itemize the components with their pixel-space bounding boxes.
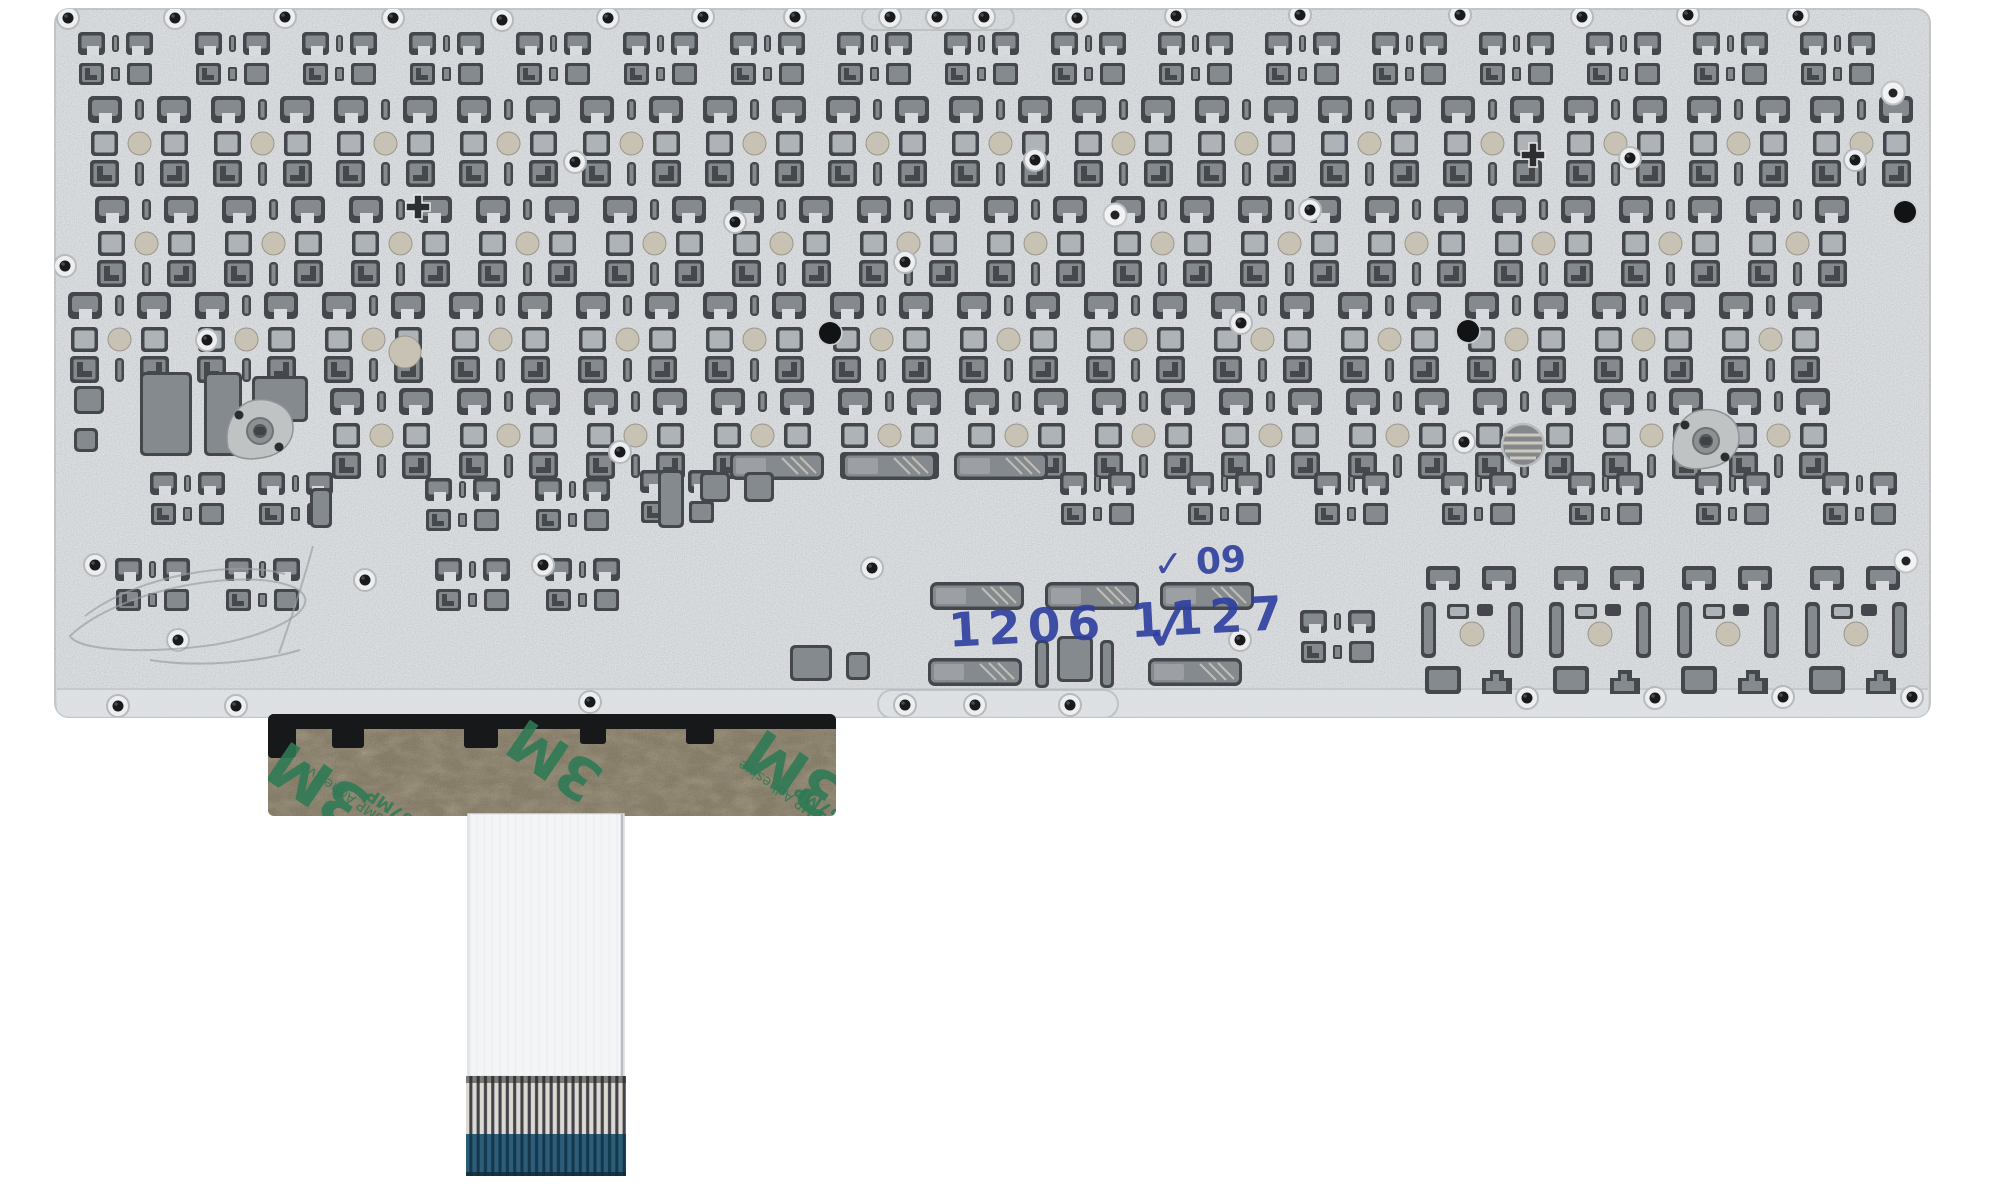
screw [609, 441, 631, 463]
key-cutout-cluster [730, 196, 833, 287]
adhesive-tab [686, 727, 714, 744]
membrane-dome [389, 336, 421, 368]
key-cutout-cluster [1592, 292, 1695, 383]
key-cutout-cluster [88, 96, 191, 187]
round-trace-hole [1502, 424, 1544, 466]
key-cutout-cluster [1365, 196, 1468, 287]
key-cutout-cluster [449, 292, 552, 383]
key-cutout-cluster [1465, 292, 1568, 383]
ring-hole [1882, 82, 1905, 105]
key-cutout-cluster [1687, 96, 1790, 187]
screw [1059, 694, 1081, 716]
screw [1230, 312, 1252, 334]
stabilizer-slot [842, 452, 936, 480]
key-cutout-cluster [1072, 96, 1175, 187]
screw [1571, 6, 1593, 28]
key-cutout-cluster [826, 96, 929, 187]
alignment-hole [1456, 319, 1480, 343]
key-cutout-cluster [957, 292, 1060, 383]
key-cutout-cluster [703, 292, 806, 383]
key-cutout-cluster [1619, 196, 1722, 287]
screw [1901, 686, 1923, 708]
key-cutout-cluster [476, 196, 579, 287]
screw [784, 6, 806, 28]
key-cutout-cluster [1211, 292, 1314, 383]
key-cutout-cluster [457, 388, 560, 479]
key-cutout-cluster [1727, 388, 1830, 479]
stabilizer-slot [928, 658, 1022, 686]
ribbon-cable-stiffener [466, 1134, 626, 1176]
key-cutout-cluster [984, 196, 1087, 287]
keyboard-backplate-photo: ✓ 09 1206 1127 ✓ 3M 3M 3M 200MP Adhesive… [0, 0, 2000, 1187]
key-cutout-cluster [1092, 388, 1195, 479]
key-cutout-cluster [580, 96, 683, 187]
ring-hole [1895, 550, 1918, 573]
screw [532, 554, 554, 576]
key-cutout-cluster [1195, 96, 1298, 187]
key-cutout-cluster [1346, 388, 1449, 479]
screw [879, 6, 901, 28]
key-cutout-cluster [211, 96, 314, 187]
key-cutout-cluster [1338, 292, 1441, 383]
screw [692, 6, 714, 28]
metal-backplate: ✓ 09 1206 1127 ✓ [54, 0, 1930, 718]
key-cutout-cluster [330, 388, 433, 479]
screw [926, 6, 948, 28]
screw [57, 7, 79, 29]
key-cutout-cluster [1084, 292, 1187, 383]
screw [54, 255, 76, 277]
key-cutout-cluster [1564, 96, 1667, 187]
edge-nub [1102, 0, 1116, 9]
key-cutout-cluster [603, 196, 706, 287]
screw [274, 6, 296, 28]
alignment-hole [1893, 200, 1917, 224]
screw [894, 251, 916, 273]
stabilizer-slot [730, 452, 824, 480]
key-cutout-cluster [1746, 196, 1849, 287]
key-cutout-cluster [1318, 96, 1421, 187]
key-cutout-cluster [1719, 292, 1822, 383]
key-cutout-cluster [830, 292, 933, 383]
handwritten-lot-small: ✓ 09 [1152, 539, 1247, 586]
screw [1844, 149, 1866, 171]
screw [491, 9, 513, 31]
screw [1449, 4, 1471, 26]
key-cutout-cluster [334, 96, 437, 187]
screw [354, 569, 376, 591]
key-cutout-cluster [703, 96, 806, 187]
key-cutout-cluster [457, 96, 560, 187]
screw [1066, 7, 1088, 29]
screw [1299, 199, 1321, 221]
screw [579, 691, 601, 713]
screw [107, 695, 129, 717]
screw [964, 694, 986, 716]
key-cutout-cluster [1238, 196, 1341, 287]
screw [1516, 687, 1538, 709]
ribbon-cable-contacts [466, 1076, 626, 1134]
key-cutout-cluster [576, 292, 679, 383]
key-cutout-cluster [1111, 196, 1214, 287]
key-cutout-cluster [949, 96, 1052, 187]
key-cutout-cluster [1492, 196, 1595, 287]
adhesive-tab [332, 727, 364, 748]
alignment-hole [818, 321, 842, 345]
screw [1677, 4, 1699, 26]
screw [382, 7, 404, 29]
screw [597, 7, 619, 29]
key-cutout-cluster [1219, 388, 1322, 479]
key-cutout-cluster [1810, 96, 1913, 187]
screw [164, 7, 186, 29]
adhesive-tab [464, 727, 498, 748]
key-cutout-cluster [1441, 96, 1544, 187]
screw [973, 6, 995, 28]
screw [1453, 431, 1475, 453]
screw [1644, 687, 1666, 709]
screw [894, 694, 916, 716]
screw [84, 554, 106, 576]
stabilizer-slot [954, 452, 1048, 480]
ring-hole [1104, 204, 1127, 227]
key-cutout-cluster [68, 292, 171, 383]
screw [1619, 147, 1641, 169]
edge-nub [1628, 0, 1642, 9]
screw [1289, 4, 1311, 26]
screw [724, 211, 746, 233]
key-cutout-cluster [584, 388, 687, 479]
key-cutout-cluster [349, 196, 452, 287]
screw [1024, 149, 1046, 171]
screw [861, 557, 883, 579]
edge-nub [1418, 0, 1432, 9]
screw [225, 695, 247, 717]
key-cutout-cluster [222, 196, 325, 287]
screw [196, 329, 218, 351]
key-cutout-cluster [95, 196, 198, 287]
edge-nub [742, 0, 756, 9]
ribbon-cable [466, 814, 626, 1176]
product-photo-stage: ✓ 09 1206 1127 ✓ 3M 3M 3M 200MP Adhesive… [0, 0, 2000, 1187]
screw [1772, 686, 1794, 708]
screw [564, 151, 586, 173]
